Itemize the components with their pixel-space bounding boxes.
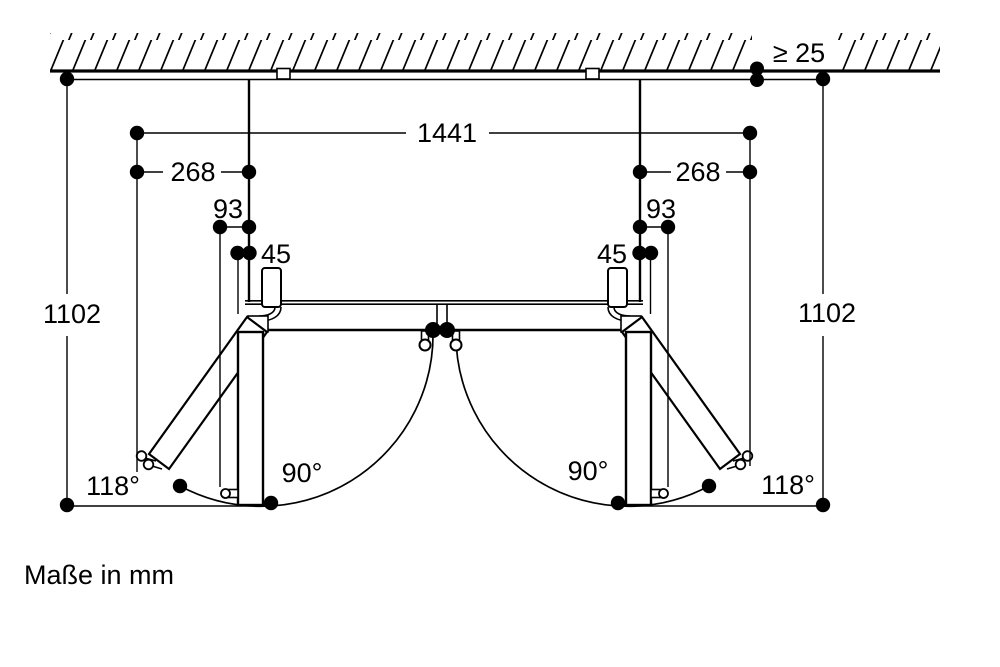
drawing-note: Maße in mm [24,560,174,590]
handle-90-left [221,489,230,498]
dim-side-left: 268 [170,157,215,187]
wall-spacer-right [586,69,599,80]
dim-handle-right: 93 [646,194,676,224]
handle-118-right [743,451,753,461]
dim-wall-gap: ≥ 25 [773,38,825,68]
angle-118-right: 118° [761,470,815,500]
dim-depth-left: 1102 [43,299,101,329]
dimension-drawing-page: 1441 268 268 93 93 45 45 ≥ 25 1102 1102 … [0,0,1000,667]
hinge-arm-left [262,268,281,307]
dim-side-right: 268 [675,157,720,187]
wall-spacer-left [277,69,290,80]
handle-90-right [659,489,668,498]
dim-door-right: 45 [597,239,627,269]
dim-total-width: 1441 [417,118,477,148]
wall-line [50,69,940,72]
dim-door-left: 45 [261,239,291,269]
appliance-dimension-drawing: 1441 268 268 93 93 45 45 ≥ 25 1102 1102 … [0,0,1000,667]
angle-118-left: 118° [86,471,140,501]
angle-90-right: 90° [568,456,609,486]
angle-90-left: 90° [282,458,323,488]
dim-handle-left: 93 [213,194,243,224]
hinge-arm-right [608,268,627,307]
handle-closed-right [451,340,462,351]
dim-depth-right: 1102 [798,298,856,328]
handle-118-left [137,451,147,461]
handle-closed-left [420,340,431,351]
